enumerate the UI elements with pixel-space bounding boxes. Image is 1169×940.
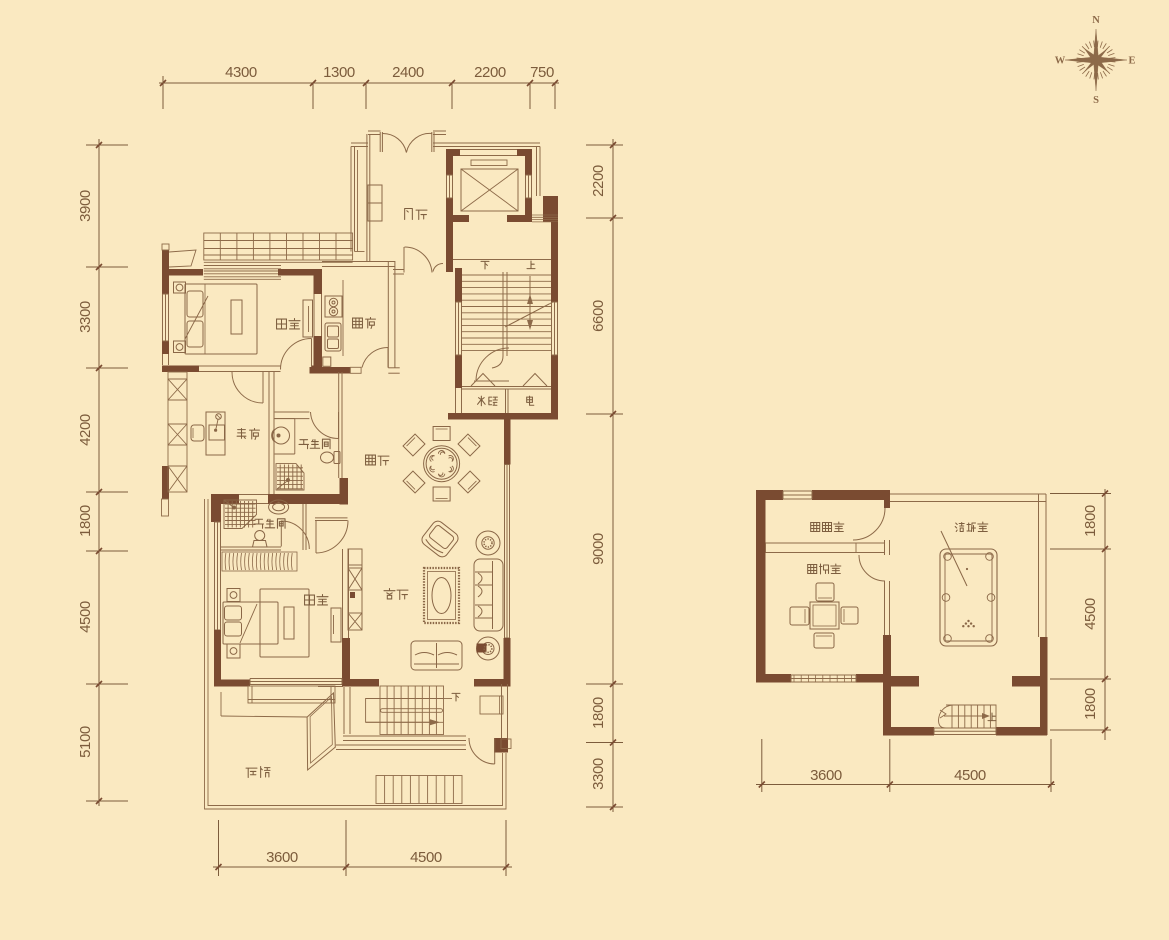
- svg-text:1800: 1800: [590, 697, 607, 729]
- svg-text:3300: 3300: [77, 301, 94, 333]
- svg-text:4500: 4500: [1082, 598, 1099, 630]
- svg-text:4500: 4500: [410, 849, 442, 866]
- svg-text:2400: 2400: [392, 64, 424, 81]
- svg-text:3600: 3600: [266, 849, 298, 866]
- svg-text:3600: 3600: [810, 767, 842, 784]
- svg-text:W: W: [1055, 56, 1066, 67]
- svg-text:1800: 1800: [1082, 688, 1099, 720]
- svg-text:4200: 4200: [77, 414, 94, 446]
- svg-text:5100: 5100: [77, 726, 94, 758]
- svg-text:E: E: [1128, 56, 1135, 67]
- svg-text:1800: 1800: [1082, 505, 1099, 537]
- svg-text:N: N: [1092, 15, 1100, 26]
- svg-text:3900: 3900: [77, 190, 94, 222]
- svg-text:6600: 6600: [590, 300, 607, 332]
- svg-text:2200: 2200: [474, 64, 506, 81]
- svg-text:750: 750: [530, 64, 554, 81]
- svg-text:1800: 1800: [77, 505, 94, 537]
- svg-text:1300: 1300: [323, 64, 355, 81]
- svg-text:S: S: [1093, 95, 1099, 106]
- svg-text:4300: 4300: [225, 64, 257, 81]
- svg-text:2200: 2200: [590, 165, 607, 197]
- svg-text:4500: 4500: [77, 601, 94, 633]
- svg-text:3300: 3300: [590, 758, 607, 790]
- svg-text:9000: 9000: [590, 533, 607, 565]
- svg-text:4500: 4500: [954, 767, 986, 784]
